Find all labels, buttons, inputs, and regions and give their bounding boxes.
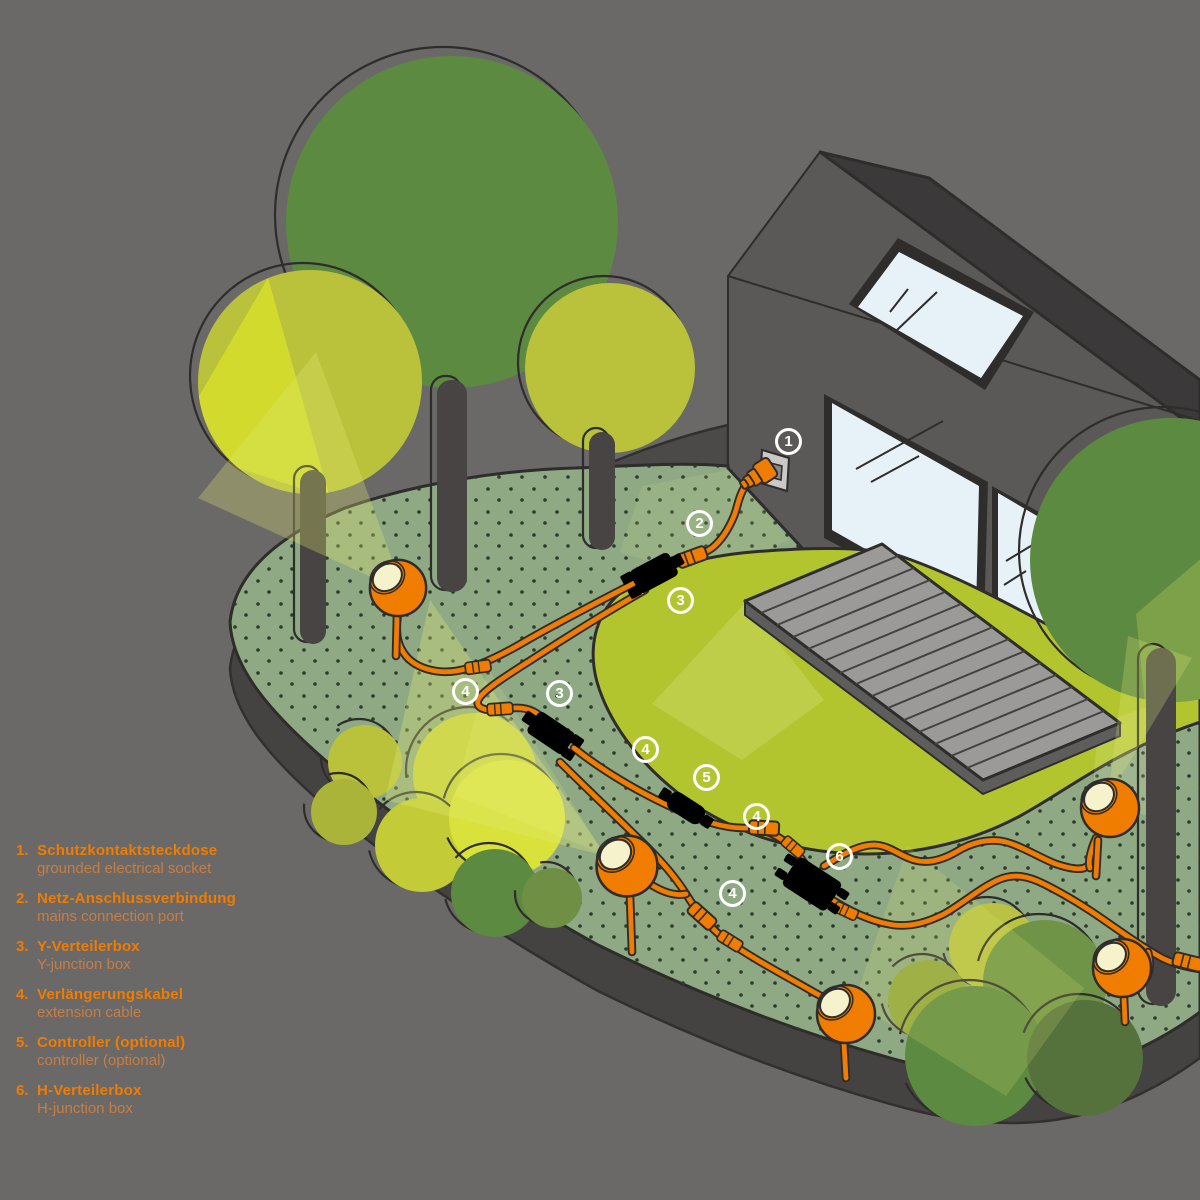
badge-5-controller: 5: [693, 764, 720, 791]
legend-de-4: Verlängerungskabel: [37, 985, 183, 1004]
badge-6-h-junction: 6: [826, 843, 853, 870]
badge-4-extension-c: 4: [743, 803, 770, 830]
legend-en-2: mains connection port: [37, 908, 236, 926]
legend-num-4: 4.: [16, 985, 37, 1022]
badge-3-y-junction-b: 3: [546, 680, 573, 707]
legend-en-1: grounded electrical socket: [37, 860, 217, 878]
legend-item-1: 1. Schutzkontaktsteckdose grounded elect…: [16, 841, 276, 878]
legend-num-2: 2.: [16, 889, 37, 926]
extension-connector-a: [465, 659, 492, 674]
badge-2-mains-port: 2: [686, 510, 713, 537]
legend-en-4: extension cable: [37, 1004, 183, 1022]
legend-en-5: controller (optional): [37, 1052, 185, 1070]
legend-de-3: Y-Verteilerbox: [37, 937, 140, 956]
badge-4-extension-b: 4: [632, 736, 659, 763]
garden-lighting-diagram: 1 2 3 4 3 4 5 4 6 4 1. Schutzkontaktstec…: [0, 0, 1200, 1200]
legend-item-2: 2. Netz-Anschlussverbindung mains connec…: [16, 889, 276, 926]
legend: 1. Schutzkontaktsteckdose grounded elect…: [16, 841, 276, 1129]
legend-de-5: Controller (optional): [37, 1033, 185, 1052]
tree-mid-canopy: [525, 283, 695, 453]
badge-4-extension-a: 4: [452, 678, 479, 705]
legend-de-6: H-Verteilerbox: [37, 1081, 142, 1100]
legend-item-3: 3. Y-Verteilerbox Y-junction box: [16, 937, 276, 974]
badge-3-y-junction-a: 3: [667, 587, 694, 614]
legend-num-3: 3.: [16, 937, 37, 974]
badge-4-extension-d: 4: [719, 880, 746, 907]
legend-en-6: H-junction box: [37, 1100, 142, 1118]
legend-de-2: Netz-Anschlussverbindung: [37, 889, 236, 908]
legend-item-5: 5. Controller (optional) controller (opt…: [16, 1033, 276, 1070]
legend-en-3: Y-junction box: [37, 956, 140, 974]
legend-num-6: 6.: [16, 1081, 37, 1118]
legend-num-1: 1.: [16, 841, 37, 878]
legend-item-4: 4. Verlängerungskabel extension cable: [16, 985, 276, 1022]
legend-num-5: 5.: [16, 1033, 37, 1070]
legend-de-1: Schutzkontaktsteckdose: [37, 841, 217, 860]
extension-connector-b: [487, 702, 513, 716]
badge-1-socket: 1: [775, 428, 802, 455]
legend-item-6: 6. H-Verteilerbox H-junction box: [16, 1081, 276, 1118]
